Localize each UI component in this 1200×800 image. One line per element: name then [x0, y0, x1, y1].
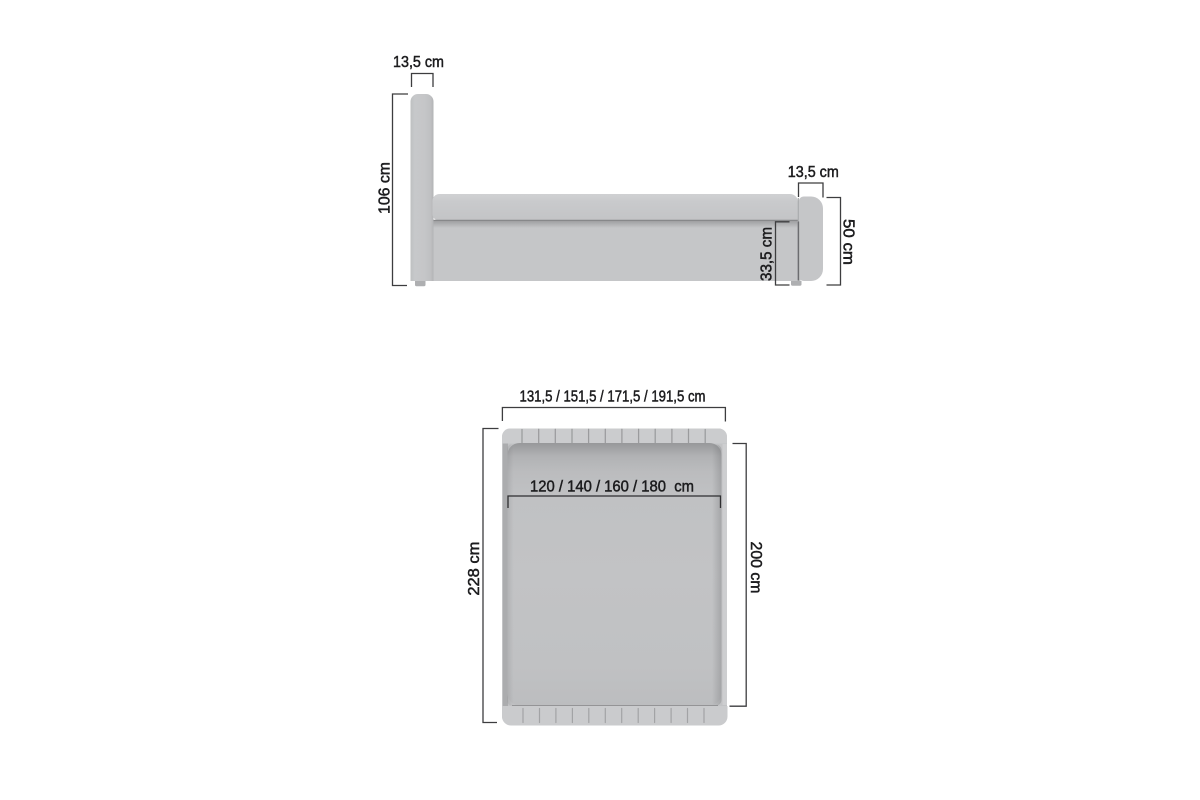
- svg-text:13,5 cm: 13,5 cm: [788, 164, 839, 181]
- svg-text:33,5 cm: 33,5 cm: [759, 227, 776, 281]
- svg-text:228 cm: 228 cm: [466, 542, 483, 596]
- svg-text:106 cm: 106 cm: [376, 162, 393, 214]
- svg-text:50 cm: 50 cm: [840, 219, 857, 265]
- svg-text:13,5 cm: 13,5 cm: [393, 54, 444, 71]
- svg-text:120 / 140 / 160 / 180 cm: 120 / 140 / 160 / 180 cm: [530, 479, 694, 496]
- svg-text:131,5 / 151,5 / 171,5 / 191,5: 131,5 / 151,5 / 171,5 / 191,5 cm: [520, 389, 706, 406]
- svg-text:200 cm: 200 cm: [747, 542, 764, 594]
